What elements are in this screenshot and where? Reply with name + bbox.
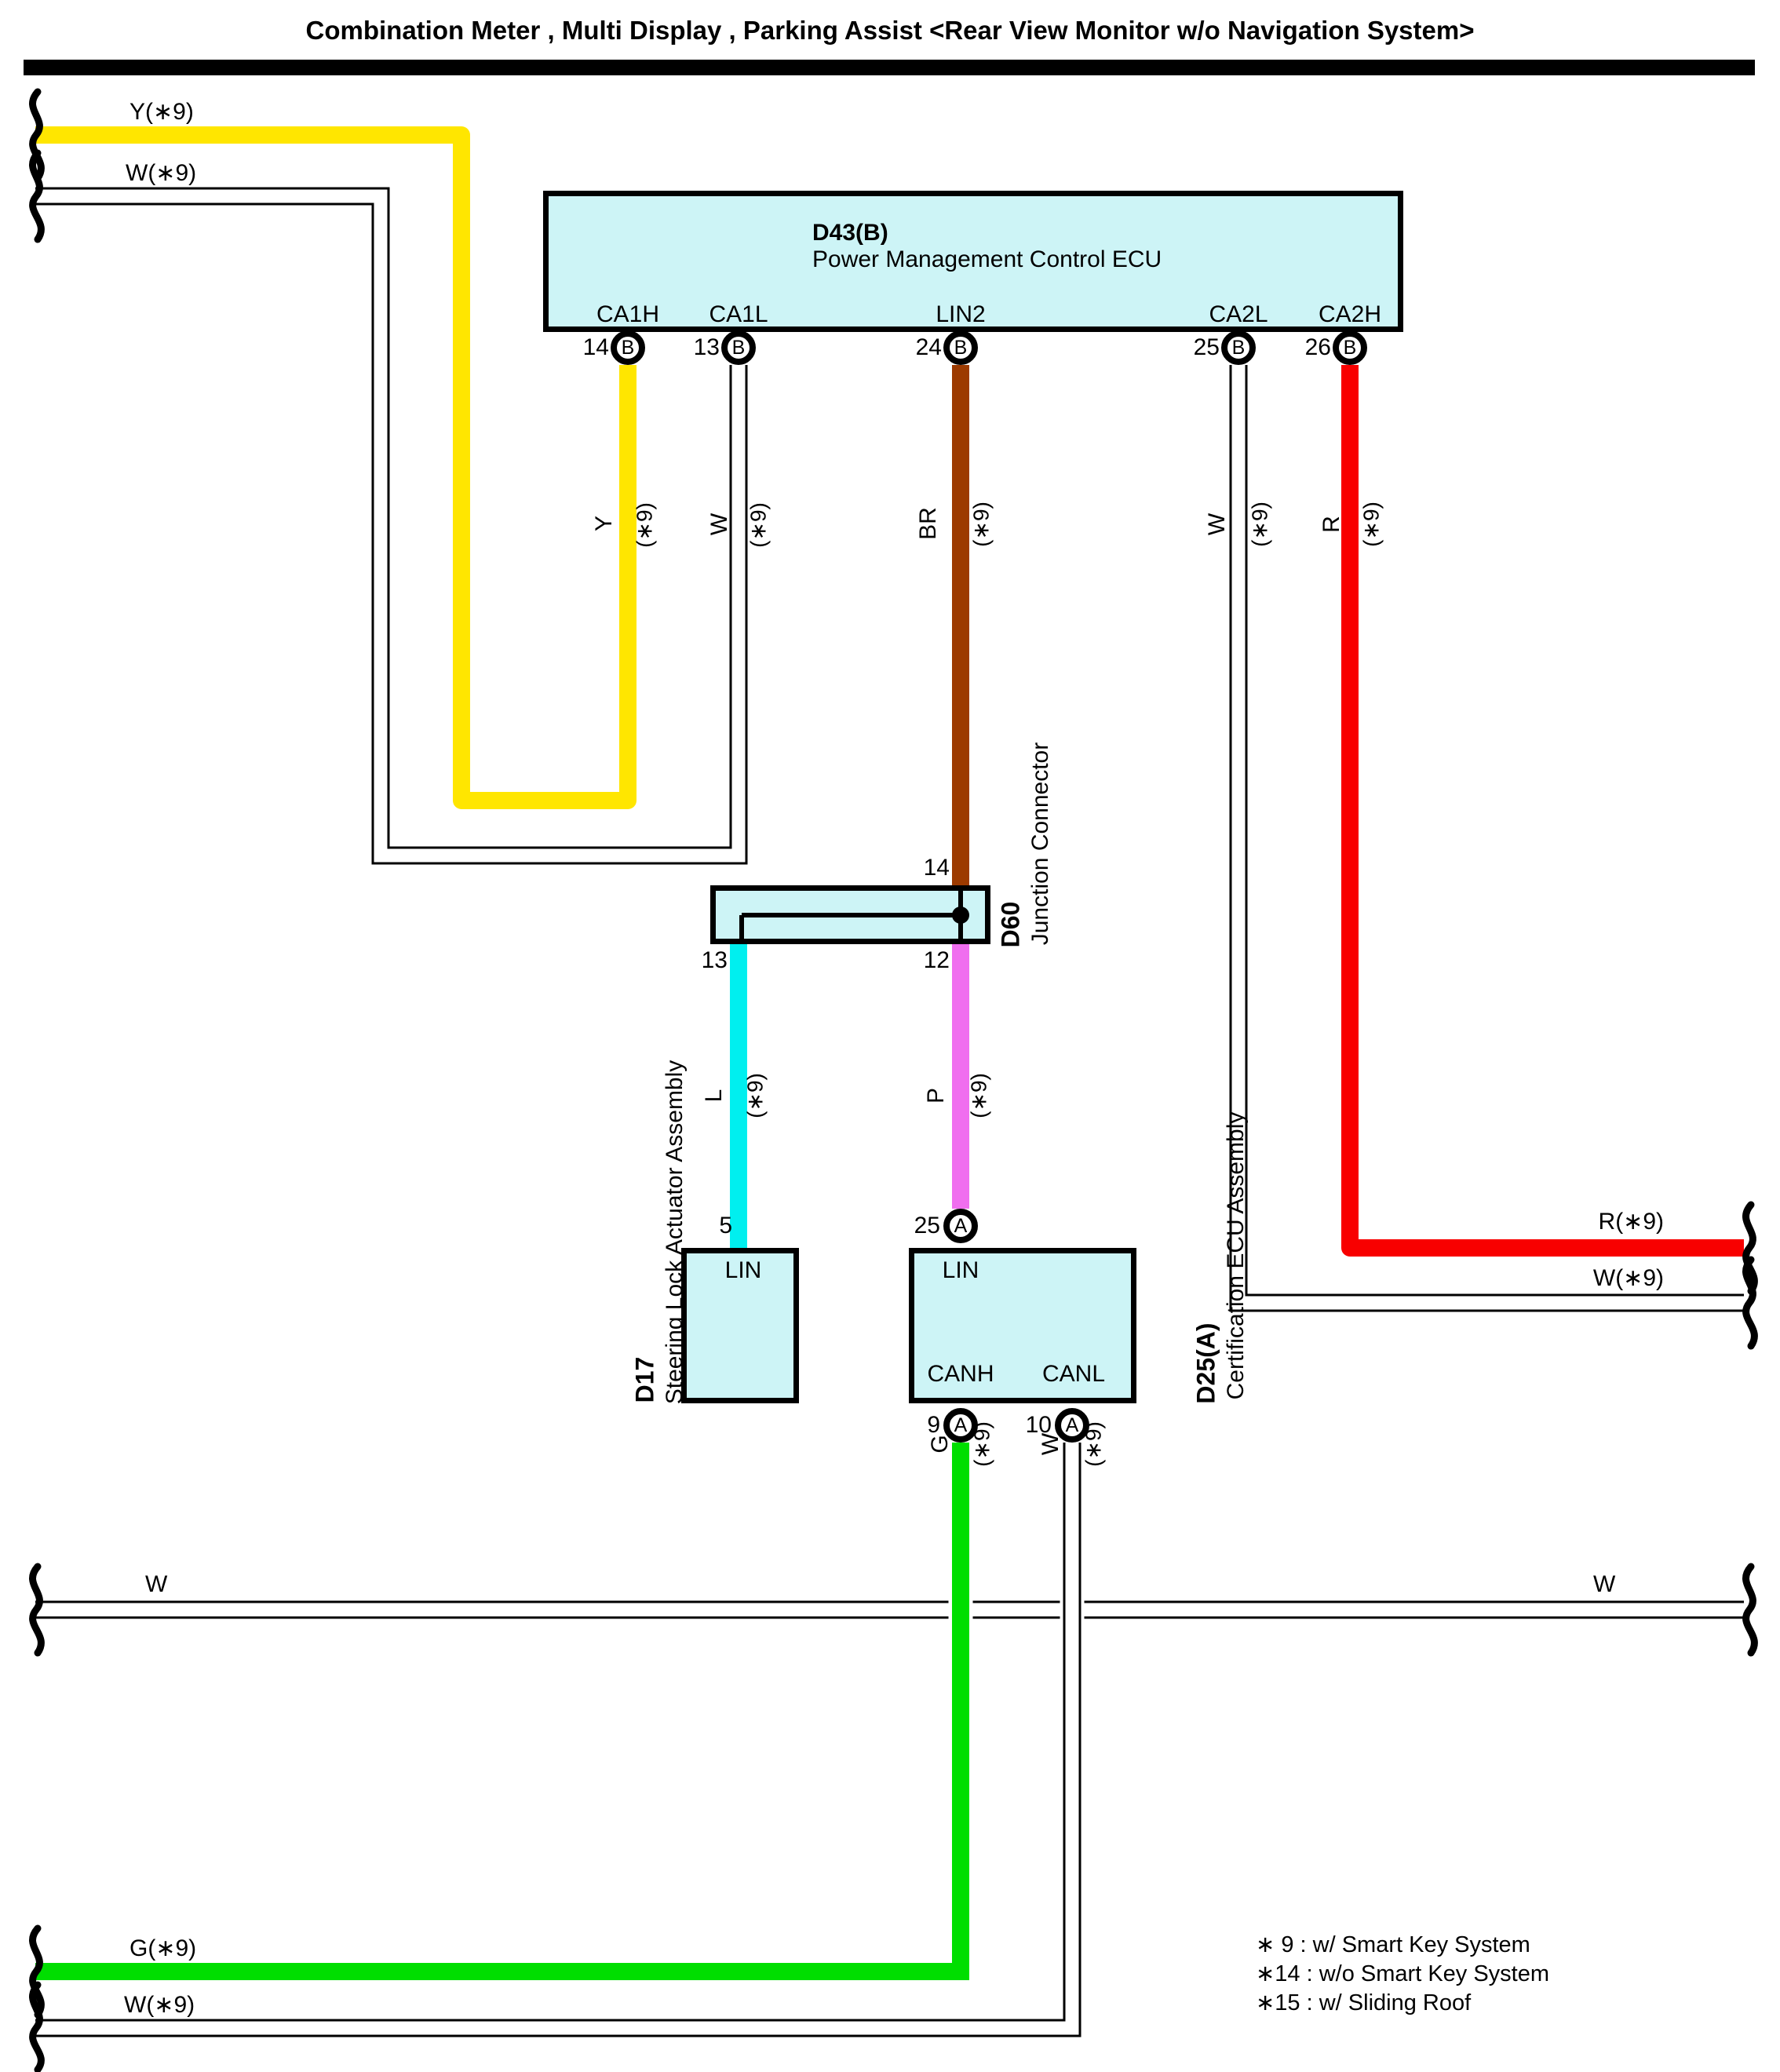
d60-pin-number-14: 14 xyxy=(924,855,950,881)
connector-circle-b-lin2: B xyxy=(943,330,978,365)
d43-name: Power Management Control ECU xyxy=(812,246,1162,272)
d25-pin-name-lin: LIN xyxy=(943,1257,979,1283)
wire-break-symbol-right-long-w xyxy=(1745,1567,1754,1653)
wire-green-canh-casing xyxy=(35,1443,961,1972)
wire-label-y-top: Y(∗9) xyxy=(129,99,194,125)
wire-label-r-right-edge: R(∗9) xyxy=(1599,1209,1664,1235)
d60-pin-number-12: 12 xyxy=(924,947,950,974)
wire-red-ca2h xyxy=(1350,365,1744,1248)
d60-name: Junction Connector xyxy=(1027,742,1054,946)
wire-label-br-vertical: BR xyxy=(915,507,942,540)
d60-junction-dot xyxy=(952,906,969,924)
wire-label-w2-vertical: W xyxy=(1204,513,1231,535)
wire-label-y-vertical: Y xyxy=(591,516,618,531)
note-without-smart-key: ∗14 : w/o Smart Key System xyxy=(1256,1960,1549,1987)
connector-circle-b-ca1l: B xyxy=(721,330,756,365)
d43-pin-name-ca2l: CA2L xyxy=(1209,301,1268,327)
d60-pin-number-13: 13 xyxy=(702,947,728,974)
wire-label-p-star9: (∗9) xyxy=(966,1073,992,1118)
d43-pin-number-14: 14 xyxy=(583,334,609,361)
wire-label-r-star9: (∗9) xyxy=(1359,502,1384,547)
wire-green-canh xyxy=(35,1443,961,1972)
d43-pin-name-lin2: LIN2 xyxy=(936,301,985,327)
wire-ca2l-white-core xyxy=(1238,365,1744,1303)
wire-label-w3-star9: (∗9) xyxy=(1081,1421,1107,1467)
wire-label-w1-star9: (∗9) xyxy=(746,502,771,548)
wire-label-l-star9: (∗9) xyxy=(742,1073,768,1118)
note-sliding-roof: ∗15 : w/ Sliding Roof xyxy=(1256,1989,1471,2016)
d25-pin-name-canh: CANH xyxy=(927,1361,994,1387)
wire-yellow-ca1h xyxy=(35,135,628,801)
wiring-diagram-page: { "title": "Combination Meter , Multi Di… xyxy=(0,0,1780,2072)
wire-label-g-bottom: G(∗9) xyxy=(129,1935,196,1961)
d25-pin-name-canl: CANL xyxy=(1042,1361,1105,1387)
wire-label-w-top: W(∗9) xyxy=(126,160,196,186)
d43-pin-name-ca1h: CA1H xyxy=(596,301,659,327)
d25-name: Certification ECU Assembly xyxy=(1223,1112,1249,1400)
wire-label-long-w-right: W xyxy=(1593,1571,1615,1597)
wire-label-g-vertical: G xyxy=(927,1435,954,1453)
d43-pin-number-26: 26 xyxy=(1305,334,1331,361)
wire-label-p-vertical: P xyxy=(923,1088,950,1103)
d25-pin-number-25: 25 xyxy=(914,1213,940,1239)
d43-pin-name-ca1l: CA1L xyxy=(709,301,768,327)
d17-pin-number-5: 5 xyxy=(719,1213,732,1239)
wire-label-w3-vertical: W xyxy=(1038,1433,1064,1455)
d43-code: D43(B) xyxy=(812,220,888,246)
d43-pin-number-25: 25 xyxy=(1194,334,1220,361)
wire-ca2l-white-case xyxy=(1238,365,1744,1303)
wire-label-long-w-left: W xyxy=(145,1571,167,1597)
wire-label-g-star9: (∗9) xyxy=(969,1421,995,1467)
wire-label-r-vertical: R xyxy=(1319,516,1345,533)
note-smart-key: ∗ 9 : w/ Smart Key System xyxy=(1256,1931,1530,1958)
wire-label-w-right-edge: W(∗9) xyxy=(1593,1265,1664,1291)
d43-pin-number-24: 24 xyxy=(916,334,942,361)
wire-label-w-bottom: W(∗9) xyxy=(124,1992,195,2018)
d25-code: D25(A) xyxy=(1192,1322,1221,1403)
wire-label-w1-vertical: W xyxy=(706,513,733,535)
d17-name: Steering Lock Actuator Assembly xyxy=(662,1060,688,1405)
connector-circle-b-ca1h: B xyxy=(611,330,645,365)
wire-break-symbol-left-long-w xyxy=(32,1567,41,1653)
d43-pin-name-ca2h: CA2H xyxy=(1319,301,1381,327)
wiring-svg xyxy=(0,0,1780,2072)
wire-label-l-vertical: L xyxy=(701,1089,728,1103)
connector-circle-a-lin: A xyxy=(943,1209,978,1243)
d17-pin-name-lin: LIN xyxy=(725,1257,762,1283)
d43-pin-number-13: 13 xyxy=(694,334,720,361)
connector-circle-b-ca2h: B xyxy=(1333,330,1367,365)
d60-code: D60 xyxy=(997,902,1026,948)
wire-label-y-star9: (∗9) xyxy=(632,502,658,548)
d17-code: D17 xyxy=(631,1357,660,1403)
connector-circle-b-ca2l: B xyxy=(1221,330,1256,365)
wire-label-w2-star9: (∗9) xyxy=(1247,502,1273,547)
wire-label-br-star9: (∗9) xyxy=(968,502,994,547)
